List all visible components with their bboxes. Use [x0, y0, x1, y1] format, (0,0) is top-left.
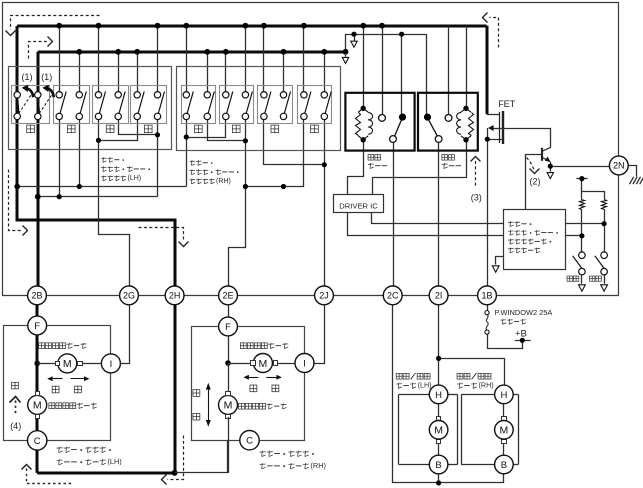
svg-text:(3): (3)	[471, 193, 482, 203]
svg-text:M: M	[500, 425, 509, 437]
svg-text:(1): (1)	[22, 72, 33, 82]
svg-text:1B: 1B	[481, 291, 492, 301]
svg-text:(4): (4)	[10, 421, 21, 431]
svg-text:FET: FET	[498, 99, 516, 109]
svg-text:(2): (2)	[530, 176, 541, 186]
svg-text:(1): (1)	[41, 72, 52, 82]
svg-text:+B: +B	[515, 329, 527, 340]
svg-text:(LH): (LH)	[107, 457, 121, 466]
svg-text:H: H	[435, 390, 442, 401]
svg-text:2B: 2B	[31, 291, 42, 301]
svg-text:M: M	[434, 425, 443, 437]
svg-text:2C: 2C	[387, 291, 399, 301]
svg-text:C: C	[246, 436, 253, 447]
svg-text:M: M	[224, 400, 233, 412]
svg-text:B: B	[501, 460, 507, 471]
svg-text:2E: 2E	[222, 291, 233, 301]
svg-text:I: I	[303, 358, 306, 369]
svg-text:H: H	[500, 390, 507, 401]
svg-text:DRIVER IC: DRIVER IC	[339, 202, 378, 211]
svg-text:2I: 2I	[435, 291, 443, 301]
svg-text:F: F	[225, 322, 231, 333]
svg-text:2G: 2G	[123, 291, 135, 301]
svg-text:B: B	[435, 460, 441, 471]
svg-text:P.WINDOW2 25A: P.WINDOW2 25A	[495, 308, 553, 317]
svg-text:M: M	[33, 400, 42, 412]
svg-text:I: I	[110, 359, 113, 370]
svg-text:(RH): (RH)	[479, 381, 494, 390]
svg-text:2H: 2H	[169, 291, 181, 301]
svg-text:(RH): (RH)	[310, 461, 326, 470]
svg-text:2N: 2N	[613, 161, 625, 171]
svg-text:M: M	[63, 358, 72, 370]
svg-text:(LH): (LH)	[418, 381, 432, 390]
svg-text:C: C	[34, 436, 41, 447]
svg-text:M: M	[259, 358, 268, 370]
svg-text:F: F	[34, 321, 40, 332]
svg-text:(LH): (LH)	[128, 175, 142, 182]
svg-text:2J: 2J	[319, 291, 329, 301]
svg-text:(RH): (RH)	[216, 178, 231, 185]
